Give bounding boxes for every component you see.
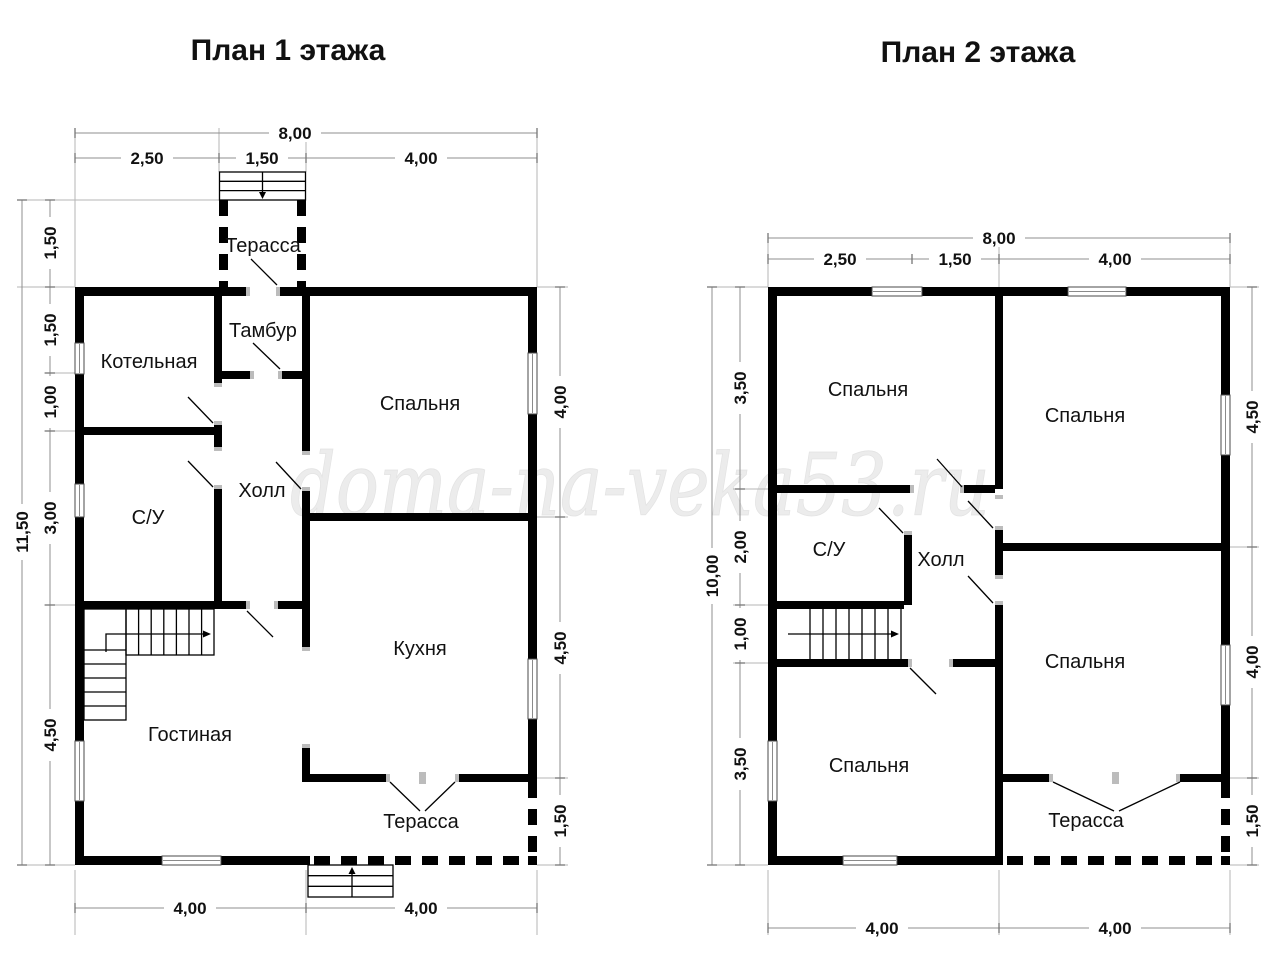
floor2-dim-left-total: 10,00 xyxy=(703,555,722,598)
floor-plan-drawing: doma-na-veka53.ru План 1 этажа xyxy=(0,0,1280,960)
floor1-room-terrace-top: Терасса xyxy=(225,235,301,257)
floor2-dim-top-1: 2,50 xyxy=(823,250,856,269)
floor2-staircase xyxy=(788,609,901,659)
floor2-dim-bottom-2: 4,00 xyxy=(1098,919,1131,938)
floor-plan-sheet: doma-na-veka53.ru План 1 этажа xyxy=(0,0,1280,960)
floor1-room-living: Гостиная xyxy=(148,724,232,746)
floor1-dim-top-total: 8,00 xyxy=(278,124,311,143)
floor1-room-kitchen: Кухня xyxy=(393,638,447,660)
floor1-entrance-steps-top xyxy=(220,172,306,200)
floor2-room-bedroom-br: Спальня xyxy=(1045,651,1125,673)
window xyxy=(1221,395,1230,455)
floor2-dim-left-4: 3,50 xyxy=(731,747,750,780)
window xyxy=(528,353,537,414)
floor2-dim-top-2: 1,50 xyxy=(938,250,971,269)
floor1-dim-left-total: 11,50 xyxy=(13,511,32,553)
floor1-dim-left-2: 1,50 xyxy=(41,313,60,346)
floor2-dim-right-1: 4,50 xyxy=(1243,400,1262,433)
floor1-room-terrace-bottom: Терасса xyxy=(383,811,459,833)
floor2-title: План 2 этажа xyxy=(881,36,1076,69)
floor2-dim-top-3: 4,00 xyxy=(1098,250,1131,269)
floor1-dim-left-3: 1,00 xyxy=(41,385,60,418)
floor2-dim-right-3: 1,50 xyxy=(1243,804,1262,837)
floor1-title: План 1 этажа xyxy=(191,34,386,67)
floor1-dim-left-5: 4,50 xyxy=(41,718,60,751)
floor1-dim-top-2: 1,50 xyxy=(245,149,278,168)
floor1-dim-top-3: 4,00 xyxy=(404,149,437,168)
floor2-room-terrace: Терасса xyxy=(1048,810,1124,832)
window xyxy=(872,287,922,296)
floor1-entrance-steps-bottom xyxy=(308,865,393,897)
window xyxy=(75,484,84,517)
floor2-room-bedroom-tr: Спальня xyxy=(1045,405,1125,427)
floor1-room-tambour: Тамбур xyxy=(229,320,297,342)
floor1-dim-top-1: 2,50 xyxy=(130,149,163,168)
floor1-internal-staircase xyxy=(84,609,214,720)
floor2-dim-left-3: 1,00 xyxy=(731,617,750,650)
floor1-dim-right-1: 4,00 xyxy=(551,385,570,418)
floor1-room-bathroom: С/У xyxy=(132,507,165,529)
floor1-dim-bottom-2: 4,00 xyxy=(404,899,437,918)
floor2-room-bathroom: С/У xyxy=(813,539,846,561)
floor2-dim-left-2: 2,00 xyxy=(731,530,750,563)
floor1-room-bedroom: Спальня xyxy=(380,393,460,415)
floor1-dim-left-1: 1,50 xyxy=(41,226,60,259)
floor1-dim-right-2: 4,50 xyxy=(551,631,570,664)
floor2-room-bedroom-tl: Спальня xyxy=(828,379,908,401)
window xyxy=(162,856,221,865)
floor2-dim-right-2: 4,00 xyxy=(1243,645,1262,678)
floor1-dim-right-3: 1,50 xyxy=(551,804,570,837)
floor1-room-hall: Холл xyxy=(238,480,285,502)
window xyxy=(1068,287,1126,296)
floor2-dim-top-total: 8,00 xyxy=(982,229,1015,248)
window xyxy=(75,343,84,374)
window xyxy=(768,741,777,801)
window xyxy=(75,741,84,801)
floor2-dim-left-1: 3,50 xyxy=(731,371,750,404)
floor1-dim-left-4: 3,00 xyxy=(41,501,60,534)
floor1-room-boiler: Котельная xyxy=(101,351,198,373)
window xyxy=(1221,645,1230,705)
floor2-room-bedroom-bl: Спальня xyxy=(829,755,909,777)
floor2-dimensions: 8,00 2,50 1,50 4,00 10,00 xyxy=(703,229,1262,938)
window xyxy=(843,856,897,865)
floor1-dim-bottom-1: 4,00 xyxy=(173,899,206,918)
floor2-extension-lines xyxy=(707,233,1259,935)
floor2-plan: План 2 этажа 8,00 xyxy=(703,36,1262,938)
window xyxy=(528,659,537,719)
floor2-room-hall: Холл xyxy=(917,549,964,571)
floor2-dim-bottom-1: 4,00 xyxy=(865,919,898,938)
